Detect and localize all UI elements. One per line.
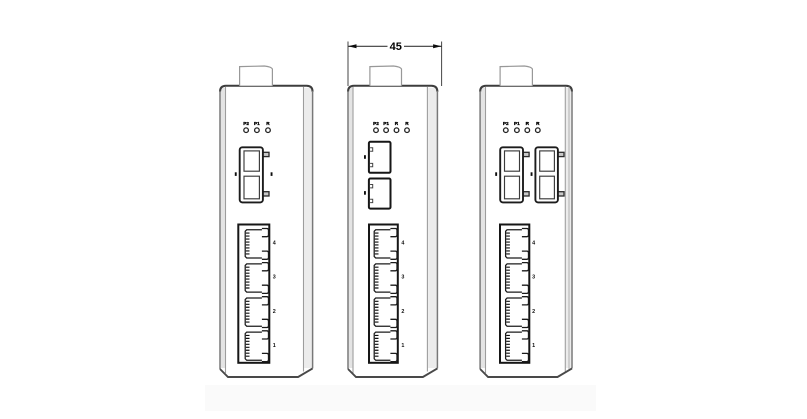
svg-text:P2: P2 (373, 121, 379, 126)
svg-text:4: 4 (401, 241, 404, 247)
svg-text:1: 1 (273, 343, 276, 349)
svg-text:3: 3 (401, 275, 404, 281)
svg-text:3: 3 (273, 275, 276, 281)
svg-text:45: 45 (390, 41, 402, 53)
svg-text:2: 2 (273, 309, 276, 315)
svg-text:P2: P2 (503, 121, 509, 126)
svg-text:P2: P2 (243, 121, 249, 126)
svg-text:4: 4 (532, 241, 535, 247)
svg-text:P1: P1 (254, 121, 260, 126)
svg-text:1: 1 (532, 343, 535, 349)
svg-text:3: 3 (532, 275, 535, 281)
svg-text:2: 2 (532, 309, 535, 315)
svg-text:4: 4 (273, 241, 276, 247)
svg-text:P1: P1 (514, 121, 520, 126)
svg-text:P1: P1 (383, 121, 389, 126)
svg-text:2: 2 (401, 309, 404, 315)
svg-text:1: 1 (401, 343, 404, 349)
